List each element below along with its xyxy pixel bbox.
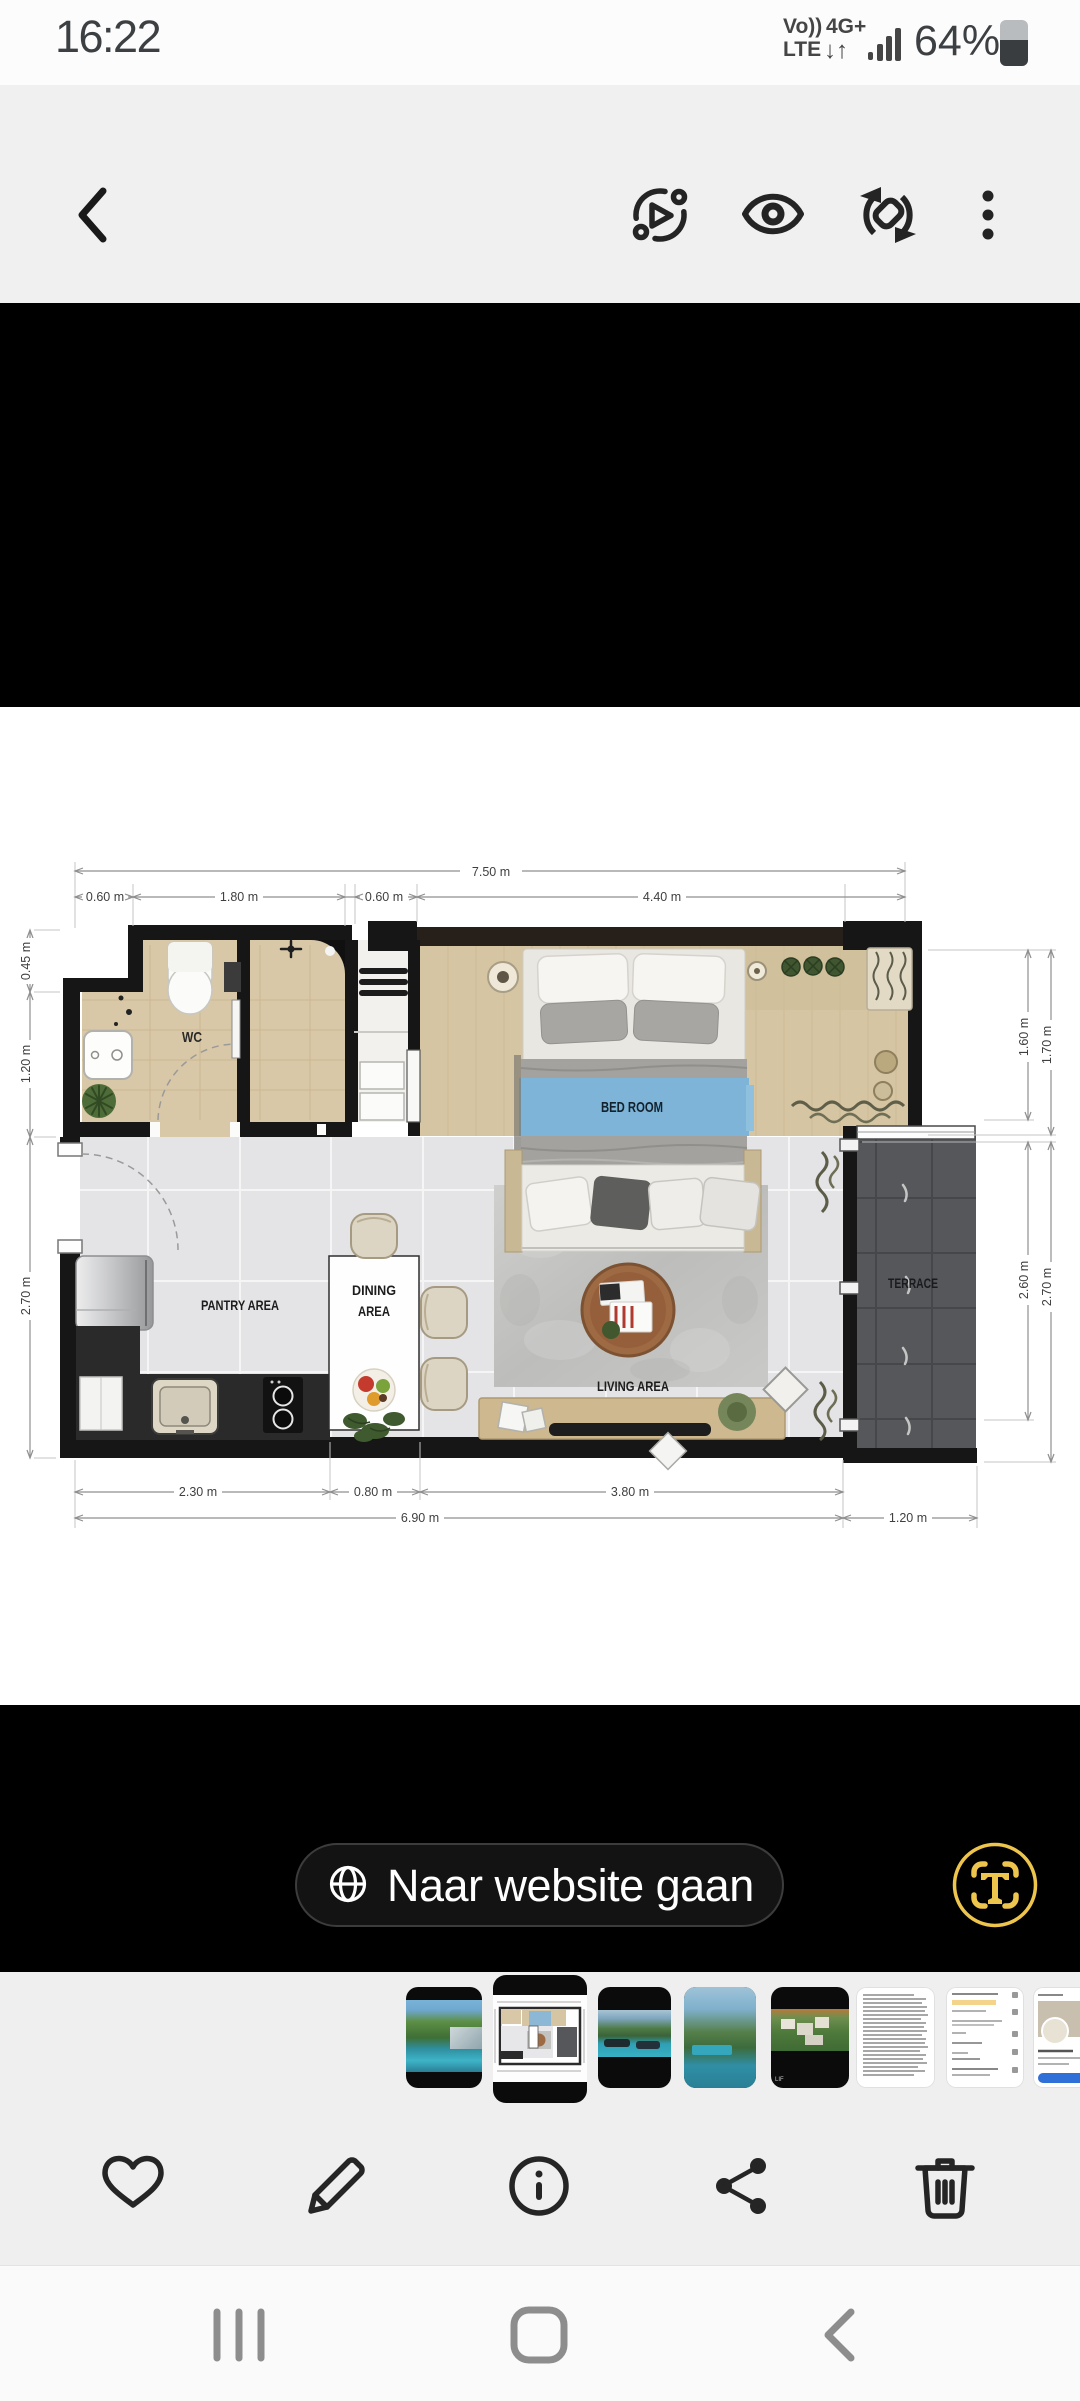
svg-text:Vo)): Vo)) — [783, 15, 822, 38]
svg-text:3.80 m: 3.80 m — [611, 1485, 649, 1499]
svg-text:4.40 m: 4.40 m — [643, 890, 681, 904]
svg-text:LIVING AREA: LIVING AREA — [597, 1378, 669, 1394]
svg-text:7.50 m: 7.50 m — [472, 865, 510, 879]
svg-text:1.20 m: 1.20 m — [19, 1045, 33, 1083]
svg-text:1.80 m: 1.80 m — [220, 890, 258, 904]
svg-text:WC: WC — [182, 1029, 202, 1046]
svg-text:2.60 m: 2.60 m — [1017, 1261, 1031, 1299]
svg-text:1.60 m: 1.60 m — [1017, 1018, 1031, 1056]
svg-text:AREA: AREA — [358, 1303, 390, 1319]
svg-text:2.70 m: 2.70 m — [19, 1277, 33, 1315]
svg-text:DINING: DINING — [352, 1282, 396, 1298]
svg-text:6.90 m: 6.90 m — [401, 1511, 439, 1525]
svg-text:BED ROOM: BED ROOM — [601, 1099, 663, 1116]
svg-text:1.20 m: 1.20 m — [889, 1511, 927, 1525]
svg-text:0.45 m: 0.45 m — [19, 942, 33, 980]
svg-text:PANTRY AREA: PANTRY AREA — [201, 1297, 279, 1313]
svg-text:4G+: 4G+ — [826, 15, 866, 38]
svg-text:64%: 64% — [914, 17, 1000, 65]
svg-text:↓↑: ↓↑ — [824, 37, 848, 64]
svg-text:2.70 m: 2.70 m — [1040, 1268, 1054, 1306]
svg-text:1.70 m: 1.70 m — [1040, 1026, 1054, 1064]
svg-text:0.80 m: 0.80 m — [354, 1485, 392, 1499]
svg-text:0.60 m: 0.60 m — [86, 890, 124, 904]
svg-text:LTE: LTE — [783, 38, 821, 61]
svg-text:0.60 m: 0.60 m — [365, 890, 403, 904]
svg-text:TERRACE: TERRACE — [888, 1275, 938, 1291]
svg-text:2.30 m: 2.30 m — [179, 1485, 217, 1499]
